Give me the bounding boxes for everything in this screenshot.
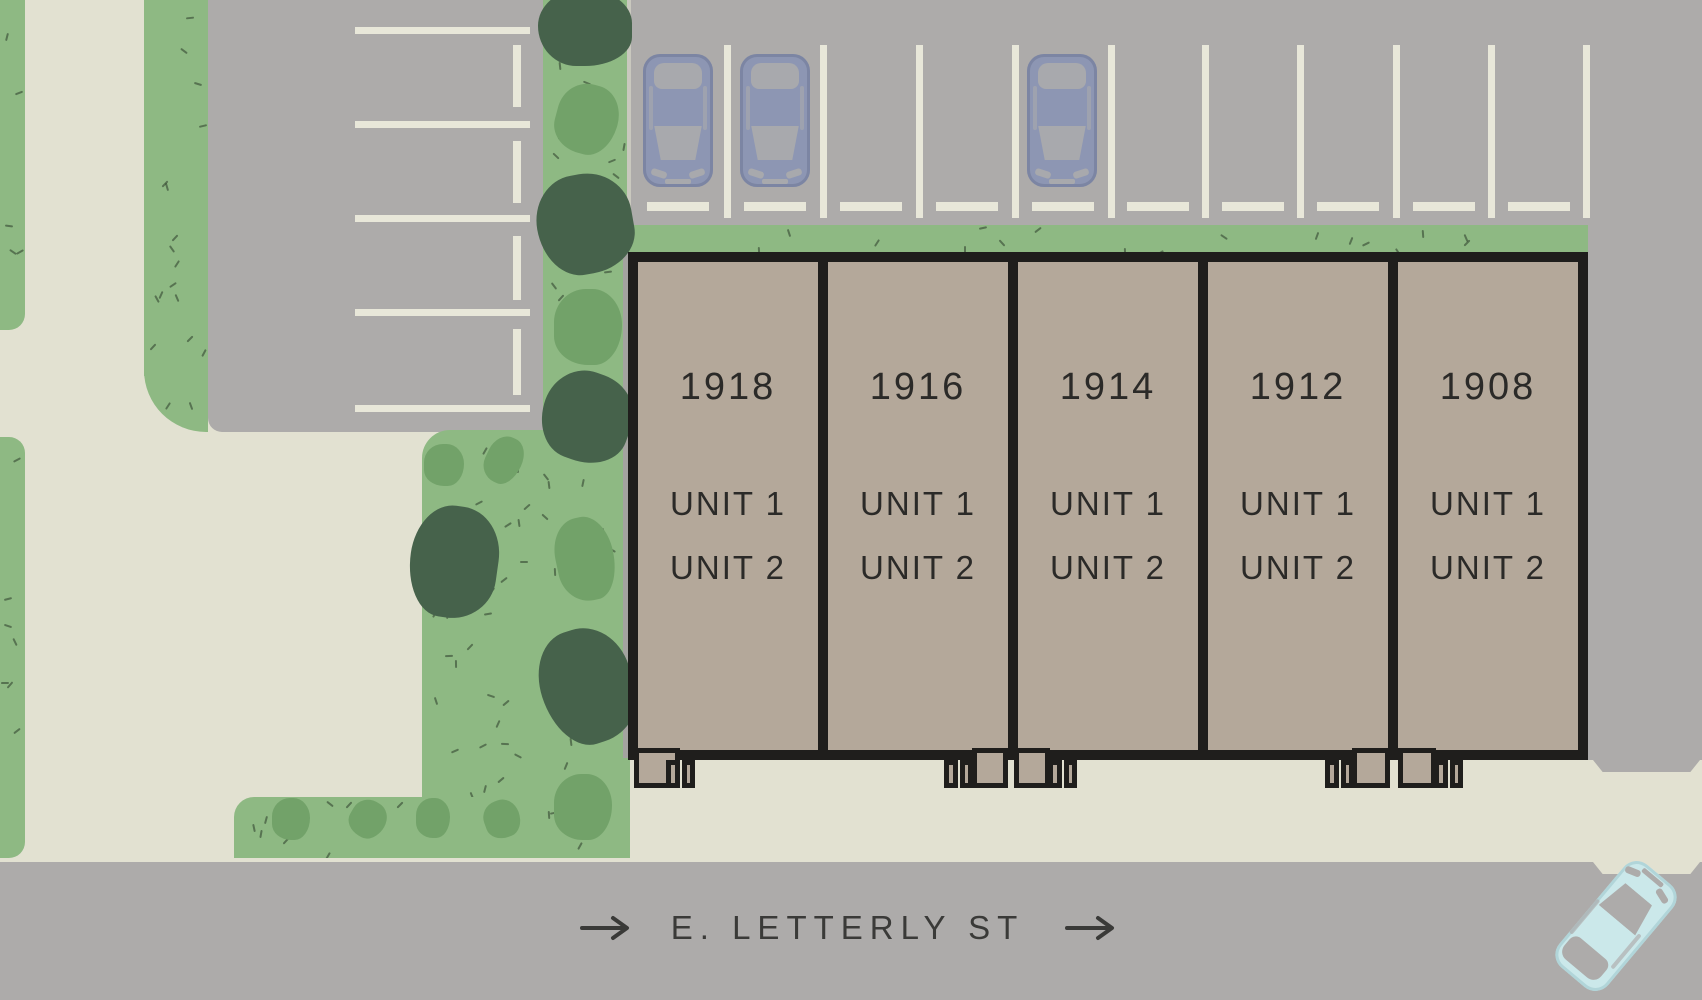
unit-label: UNIT 1 [828, 486, 1008, 522]
unit-label: UNIT 2 [1018, 550, 1198, 586]
stall-line [355, 215, 530, 222]
arrow-right-icon [1060, 914, 1120, 942]
unit-label: UNIT 2 [828, 550, 1008, 586]
building-row: 1918 UNIT 1 UNIT 2 1916 UNIT 1 UNIT 2 19… [628, 252, 1588, 760]
lot-number: 1912 [1208, 366, 1388, 408]
unit-label: UNIT 1 [638, 486, 818, 522]
stall-tick [513, 329, 521, 395]
parked-car-icon [643, 54, 713, 187]
stoop-step [666, 760, 680, 788]
street-name: E. LETTERLY ST [640, 908, 1055, 948]
grass-edge-strip-bottom [0, 437, 25, 858]
stall-line [355, 405, 530, 412]
stoop-step [1450, 760, 1463, 788]
grass-strip-left [144, 0, 208, 376]
stall-stop-bar [840, 202, 902, 211]
stoop [1014, 748, 1050, 788]
stall-stop-bar [1317, 202, 1379, 211]
lot-number: 1916 [828, 366, 1008, 408]
stall-line [1583, 45, 1590, 218]
lot-1912[interactable]: 1912 UNIT 1 UNIT 2 [1208, 262, 1388, 750]
stoop-step [1048, 760, 1062, 788]
stall-line [355, 27, 530, 34]
unit-label: UNIT 1 [1208, 486, 1388, 522]
bush-icon [554, 289, 622, 365]
stall-stop-bar [647, 202, 709, 211]
lot-1918[interactable]: 1918 UNIT 1 UNIT 2 [638, 262, 818, 750]
grass-strip-left-corner [144, 370, 208, 432]
parked-car-icon [1027, 54, 1097, 187]
stall-line [1012, 45, 1019, 218]
stall-stop-bar [744, 202, 806, 211]
stall-tick [513, 236, 521, 300]
stall-line [724, 45, 731, 218]
grass-edge-strip-top [0, 0, 25, 330]
driveway-right [1588, 224, 1702, 760]
stall-line [1108, 45, 1115, 218]
grass-building-verge [628, 225, 1588, 253]
stall-line [1393, 45, 1400, 218]
unit-label: UNIT 1 [1018, 486, 1198, 522]
lot-1914[interactable]: 1914 UNIT 1 UNIT 2 [1018, 262, 1198, 750]
bush-icon [554, 774, 612, 840]
stall-stop-bar [1413, 202, 1475, 211]
stoop-step [1434, 760, 1448, 788]
stoop-step [944, 760, 958, 788]
stall-stop-bar [1127, 202, 1189, 211]
lot-number: 1918 [638, 366, 818, 408]
unit-label: UNIT 2 [638, 550, 818, 586]
parked-car-icon [740, 54, 810, 187]
stoop-step [682, 760, 695, 788]
stall-line [1202, 45, 1209, 218]
stall-stop-bar [1508, 202, 1570, 211]
tree-icon [538, 0, 632, 66]
bush-icon [424, 444, 464, 486]
stall-line [355, 309, 530, 316]
stoop [1352, 748, 1390, 788]
lot-1916[interactable]: 1916 UNIT 1 UNIT 2 [828, 262, 1008, 750]
lot-1908[interactable]: 1908 UNIT 1 UNIT 2 [1398, 262, 1578, 750]
stall-line [355, 121, 530, 128]
stoop-step [1064, 760, 1077, 788]
stall-stop-bar [1222, 202, 1284, 211]
stoop [1398, 748, 1436, 788]
unit-label: UNIT 1 [1398, 486, 1578, 522]
arrow-right-icon [575, 914, 635, 942]
stall-stop-bar [936, 202, 998, 211]
stall-stop-bar [1032, 202, 1094, 211]
bush-icon [416, 798, 450, 838]
stall-line [820, 45, 827, 218]
stall-line [916, 45, 923, 218]
stall-line [1488, 45, 1495, 218]
bush-icon [272, 798, 310, 840]
stall-line [1297, 45, 1304, 218]
stoop-step [1325, 760, 1339, 788]
lot-number: 1914 [1018, 366, 1198, 408]
lot-number: 1908 [1398, 366, 1578, 408]
stoop [972, 748, 1008, 788]
site-plan-canvas: 1918 UNIT 1 UNIT 2 1916 UNIT 1 UNIT 2 19… [0, 0, 1702, 1000]
driveway-apron [1593, 760, 1700, 772]
unit-label: UNIT 2 [1398, 550, 1578, 586]
stall-tick [513, 45, 521, 107]
stall-tick [513, 141, 521, 203]
unit-label: UNIT 2 [1208, 550, 1388, 586]
